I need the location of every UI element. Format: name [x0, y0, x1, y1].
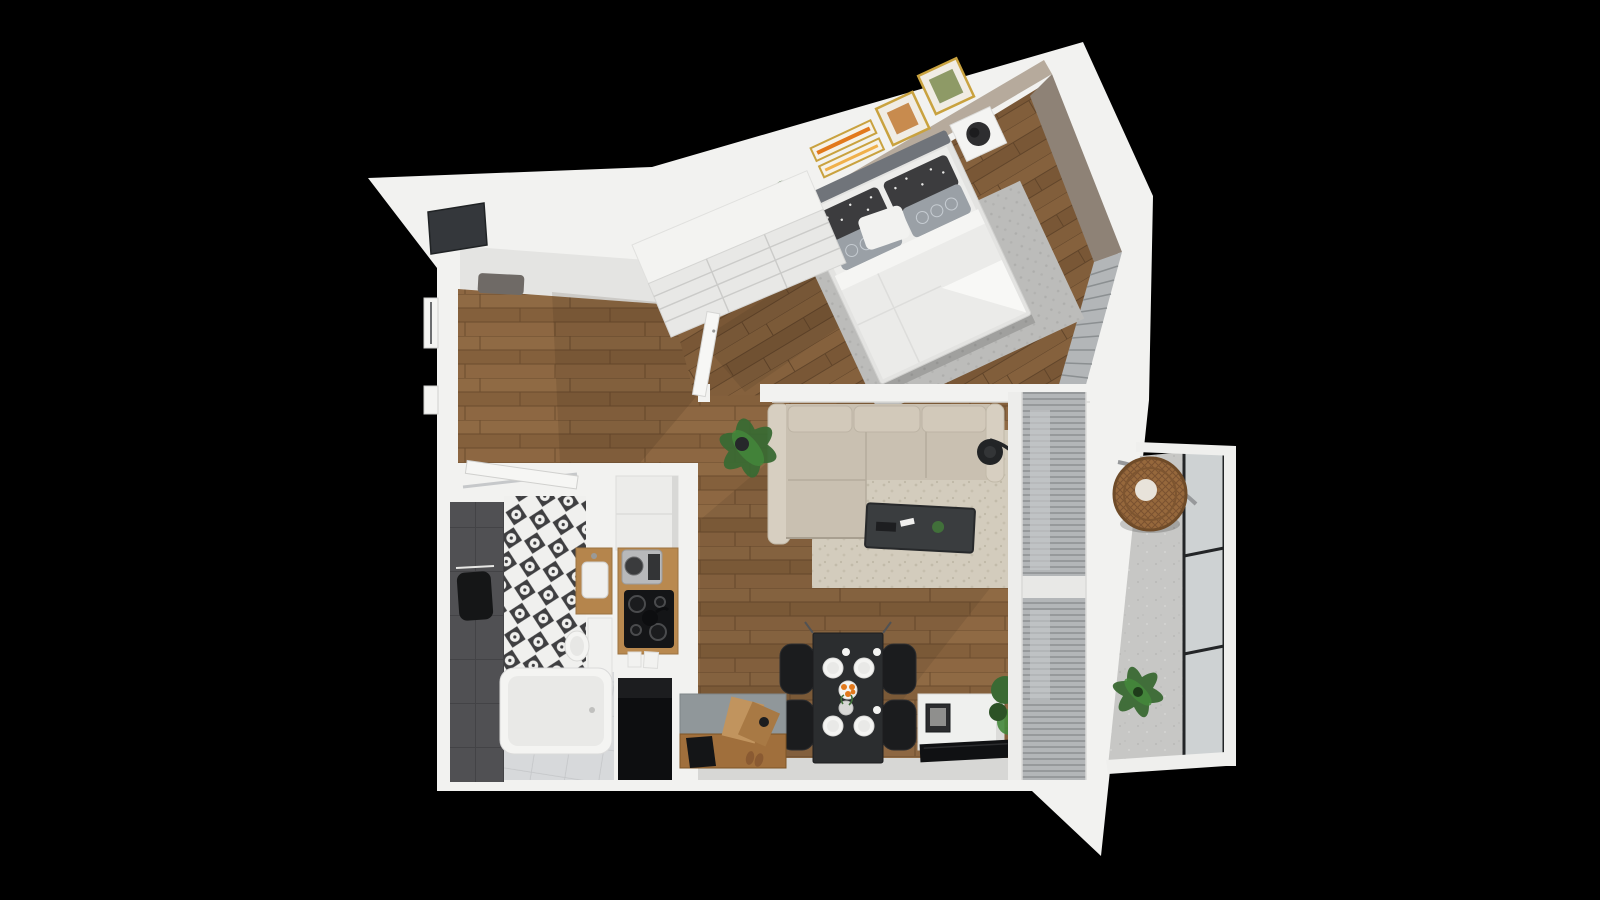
window-sill [1008, 392, 1022, 780]
towel [456, 571, 493, 621]
dining-chair [882, 644, 916, 694]
upper-cabinets [616, 476, 678, 550]
kettle [642, 610, 658, 626]
black-bag [686, 736, 716, 768]
coffee-table [865, 503, 975, 553]
hallway-bench [478, 273, 525, 295]
vanity-sink [576, 548, 612, 614]
entrance-mirror [428, 203, 487, 254]
window-wall-living [1008, 392, 1086, 780]
floor-plan-stage [0, 0, 1600, 900]
coffee-machine [622, 550, 662, 584]
dining-chair [882, 700, 916, 750]
book [876, 522, 896, 532]
kitchen-niche [618, 678, 672, 780]
kitchen [616, 476, 678, 780]
bathtub [500, 668, 612, 754]
balcony [1106, 442, 1236, 774]
sideboard [680, 694, 786, 768]
cooktop [624, 590, 674, 648]
floor-plan-render [0, 0, 1600, 900]
dark-tile-wall [450, 502, 504, 782]
dining-chair [780, 644, 814, 694]
